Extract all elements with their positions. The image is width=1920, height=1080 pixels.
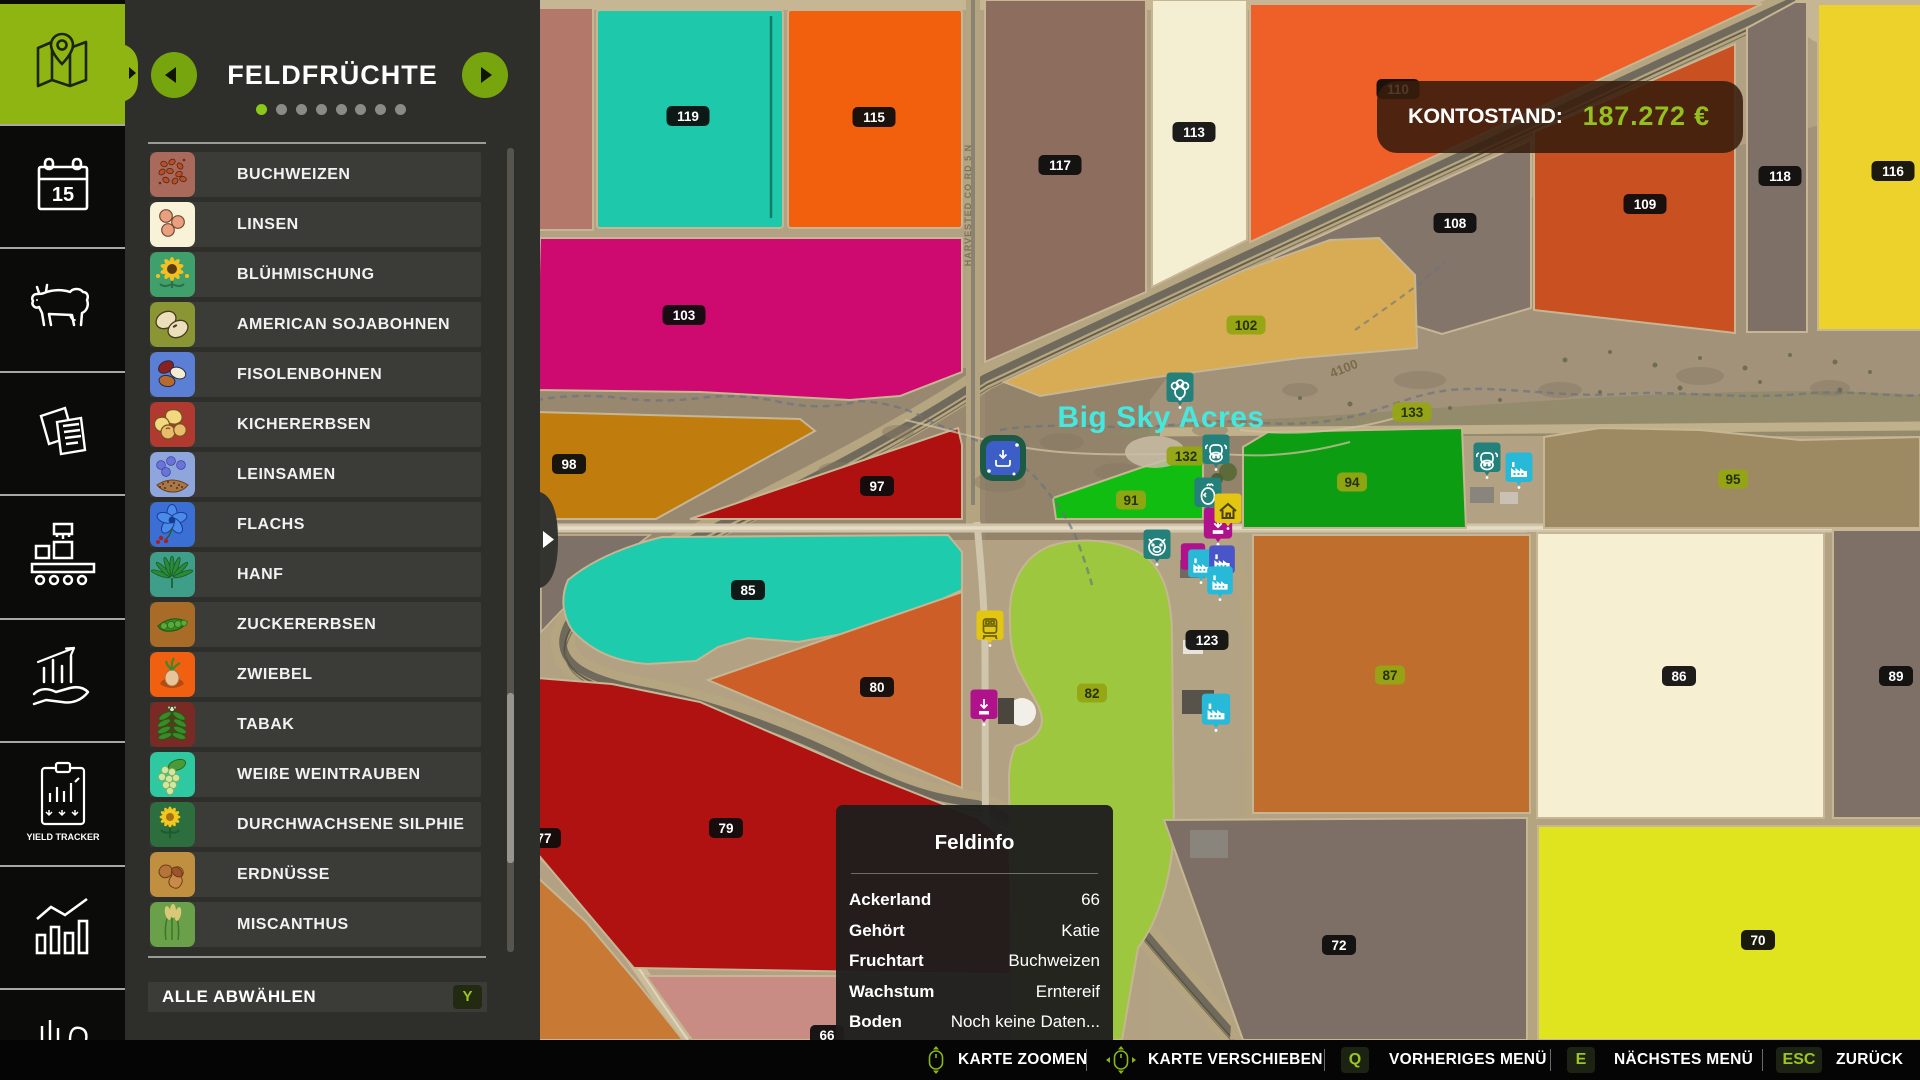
svg-text:116: 116: [1882, 164, 1904, 179]
svg-text:91: 91: [1123, 493, 1139, 508]
svg-text:Big Sky Acres: Big Sky Acres: [1057, 401, 1264, 434]
svg-text:70: 70: [1750, 933, 1765, 948]
svg-text:102: 102: [1235, 318, 1258, 333]
svg-text:97: 97: [869, 479, 884, 494]
svg-text:108: 108: [1444, 216, 1467, 231]
svg-text:95: 95: [1725, 472, 1741, 487]
svg-text:98: 98: [561, 457, 577, 472]
svg-text:123: 123: [1196, 633, 1219, 648]
svg-text:109: 109: [1634, 197, 1657, 212]
svg-text:113: 113: [1183, 125, 1205, 140]
svg-text:119: 119: [677, 109, 699, 124]
svg-text:85: 85: [740, 583, 756, 598]
svg-text:86: 86: [1671, 669, 1687, 684]
svg-text:82: 82: [1084, 686, 1099, 701]
svg-text:72: 72: [1331, 938, 1346, 953]
svg-text:133: 133: [1401, 405, 1424, 420]
svg-text:89: 89: [1888, 669, 1903, 684]
svg-text:132: 132: [1175, 449, 1198, 464]
svg-text:80: 80: [869, 680, 884, 695]
svg-text:87: 87: [1382, 668, 1397, 683]
svg-text:HARVESTED CO RD 5 N: HARVESTED CO RD 5 N: [963, 144, 973, 266]
svg-text:117: 117: [1049, 158, 1071, 173]
svg-text:YIELD TRACKER: YIELD TRACKER: [26, 832, 100, 842]
svg-text:79: 79: [718, 821, 733, 836]
svg-text:118: 118: [1769, 169, 1791, 184]
svg-text:115: 115: [863, 110, 885, 125]
svg-text:103: 103: [673, 308, 696, 323]
svg-text:94: 94: [1344, 475, 1360, 490]
svg-text:15: 15: [52, 184, 74, 206]
